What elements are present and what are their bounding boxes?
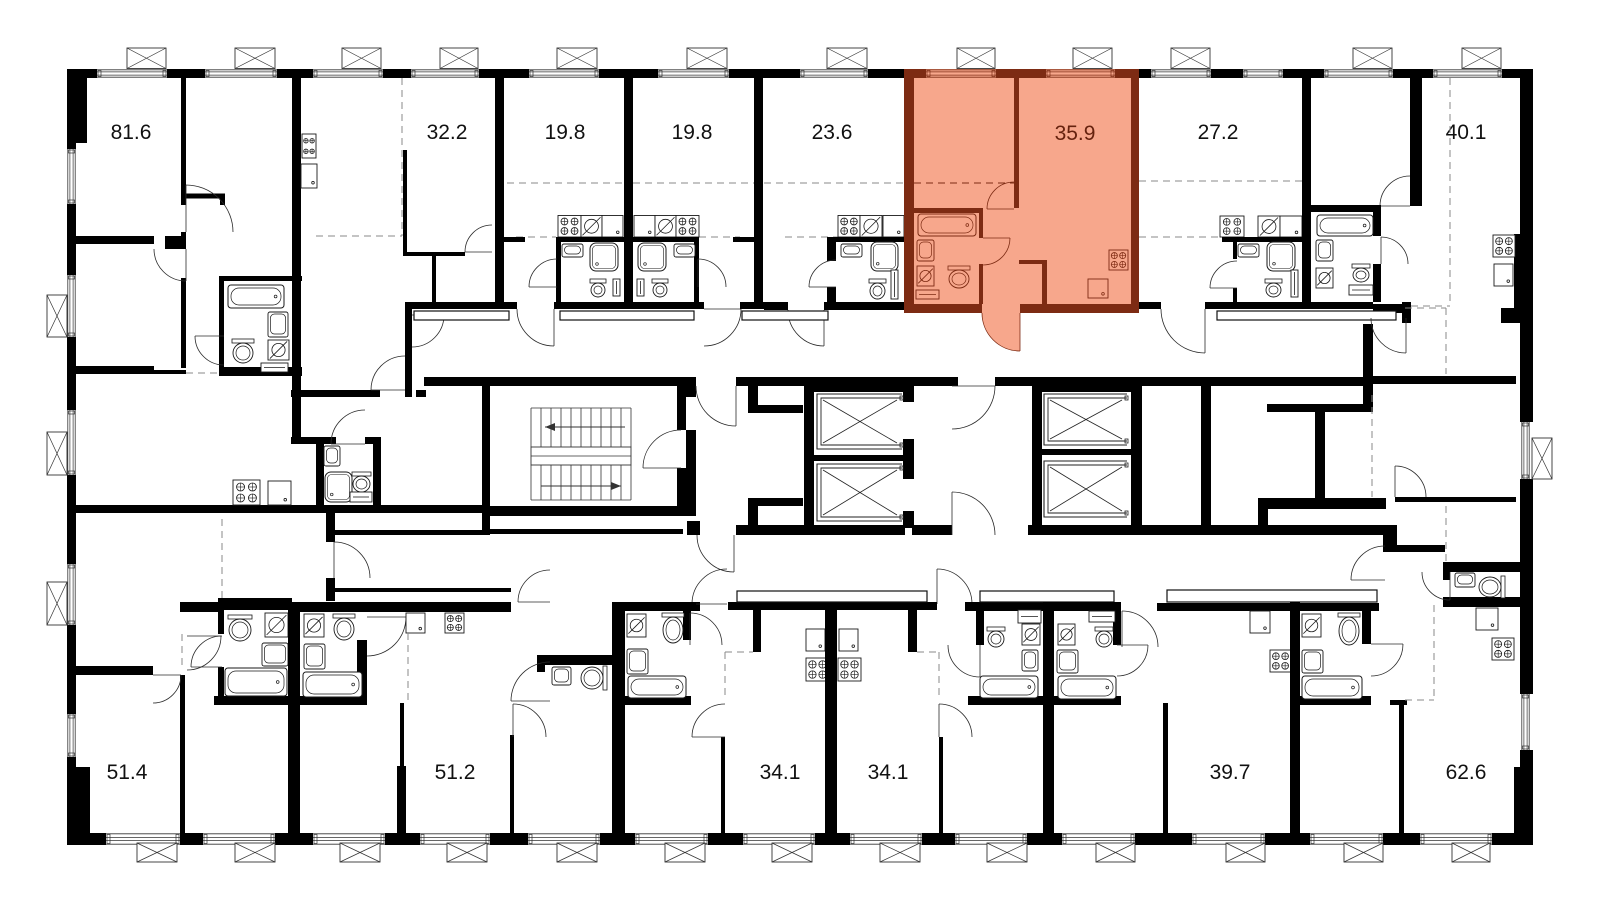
svg-text:34.1: 34.1: [868, 761, 909, 784]
svg-text:35.9: 35.9: [1055, 122, 1096, 145]
svg-text:40.1: 40.1: [1446, 121, 1487, 144]
svg-text:39.7: 39.7: [1210, 761, 1251, 784]
svg-text:81.6: 81.6: [111, 121, 152, 144]
svg-text:51.4: 51.4: [107, 761, 148, 784]
svg-text:19.8: 19.8: [672, 121, 713, 144]
svg-text:51.2: 51.2: [435, 761, 476, 784]
svg-text:62.6: 62.6: [1446, 761, 1487, 784]
svg-text:19.8: 19.8: [545, 121, 586, 144]
svg-text:34.1: 34.1: [760, 761, 801, 784]
svg-text:32.2: 32.2: [427, 121, 468, 144]
svg-text:23.6: 23.6: [812, 121, 853, 144]
svg-text:27.2: 27.2: [1198, 121, 1239, 144]
